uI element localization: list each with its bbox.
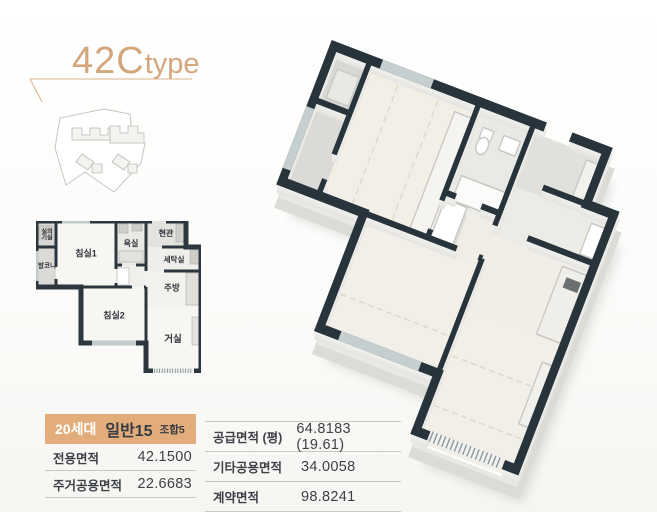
association-count: 조합5 — [160, 422, 185, 437]
row-value: 22.6683 — [137, 476, 192, 492]
site-plan-svg — [52, 106, 170, 206]
stats-header: 20세대 일반15 조합5 — [45, 414, 196, 444]
label-outdoor-unit-room: 실외 기실 — [41, 230, 52, 243]
label-bathroom: 욕실 — [124, 240, 139, 248]
general-count: 일반15 — [105, 417, 152, 441]
label-bedroom2: 침실2 — [103, 311, 125, 320]
stats-table-left: 20세대 일반15 조합5 전용면적 42.1500 주거공용면적 22.668… — [45, 414, 196, 498]
row-label: 주거공용면적 — [53, 475, 122, 494]
mini-floorplan-svg — [36, 221, 201, 373]
label-bedroom1: 침실1 — [75, 249, 97, 258]
label-balcony: 발코니 — [38, 264, 56, 271]
table-row: 주거공용면적 22.6683 — [45, 471, 196, 498]
mini-floorplan: 실외 기실 발코니 침실1 욕실 현관 세탁실 주방 침실2 거실 — [36, 221, 201, 373]
table-row: 전용면적 42.1500 — [45, 444, 196, 471]
row-label: 전용면적 — [53, 448, 99, 467]
label-entrance: 현관 — [159, 230, 174, 238]
label-laundry: 세탁실 — [164, 256, 185, 264]
floors-3d — [232, 56, 634, 479]
title-underline — [24, 72, 204, 106]
floorplan-page: 42Ctype — [0, 0, 657, 512]
floorplan-3d-svg — [232, 0, 657, 512]
household-count: 20세대 — [55, 419, 96, 439]
label-living-room: 거실 — [164, 335, 181, 345]
row-value: 42.1500 — [137, 449, 192, 465]
label-kitchen: 주방 — [164, 284, 180, 293]
